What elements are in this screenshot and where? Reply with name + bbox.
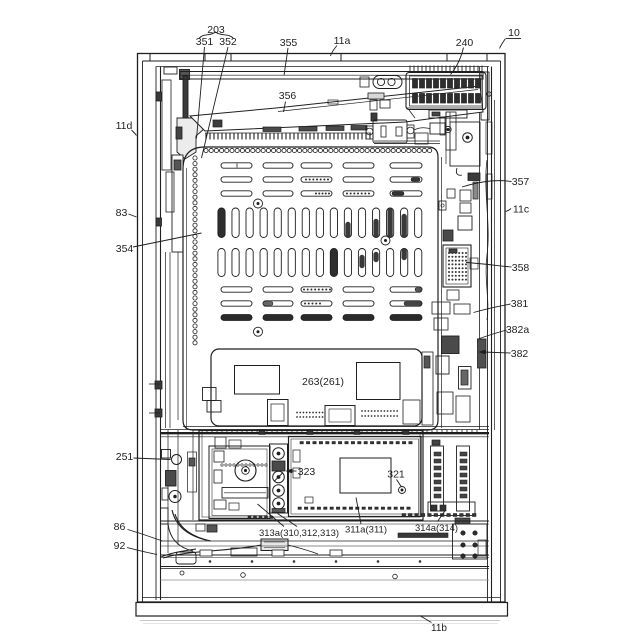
svg-text:263(261): 263(261) [302, 376, 344, 388]
svg-text:351: 351 [196, 36, 214, 48]
svg-text:382: 382 [511, 348, 529, 360]
svg-text:381: 381 [511, 298, 529, 310]
svg-text:354: 354 [116, 243, 134, 255]
svg-text:311a(311): 311a(311) [345, 525, 387, 536]
svg-text:11b: 11b [431, 623, 447, 634]
svg-text:11a: 11a [334, 35, 351, 47]
svg-text:355: 355 [280, 37, 298, 49]
svg-text:357: 357 [512, 176, 530, 188]
svg-text:92: 92 [114, 540, 126, 552]
svg-text:323: 323 [298, 466, 316, 478]
svg-text:83: 83 [116, 207, 128, 219]
svg-text:358: 358 [512, 262, 530, 274]
svg-text:356: 356 [279, 90, 297, 102]
svg-text:313a(310,312,313): 313a(310,312,313) [259, 528, 339, 539]
svg-text:314a(314): 314a(314) [415, 523, 458, 534]
svg-text:11c: 11c [513, 204, 529, 216]
svg-text:11d: 11d [116, 120, 133, 132]
svg-text:86: 86 [114, 521, 126, 533]
svg-text:352: 352 [219, 36, 237, 48]
svg-text:321: 321 [387, 469, 405, 481]
svg-text:240: 240 [456, 37, 474, 49]
svg-text:10: 10 [508, 27, 520, 39]
svg-text:382a: 382a [506, 324, 530, 336]
svg-text:251: 251 [116, 451, 134, 463]
